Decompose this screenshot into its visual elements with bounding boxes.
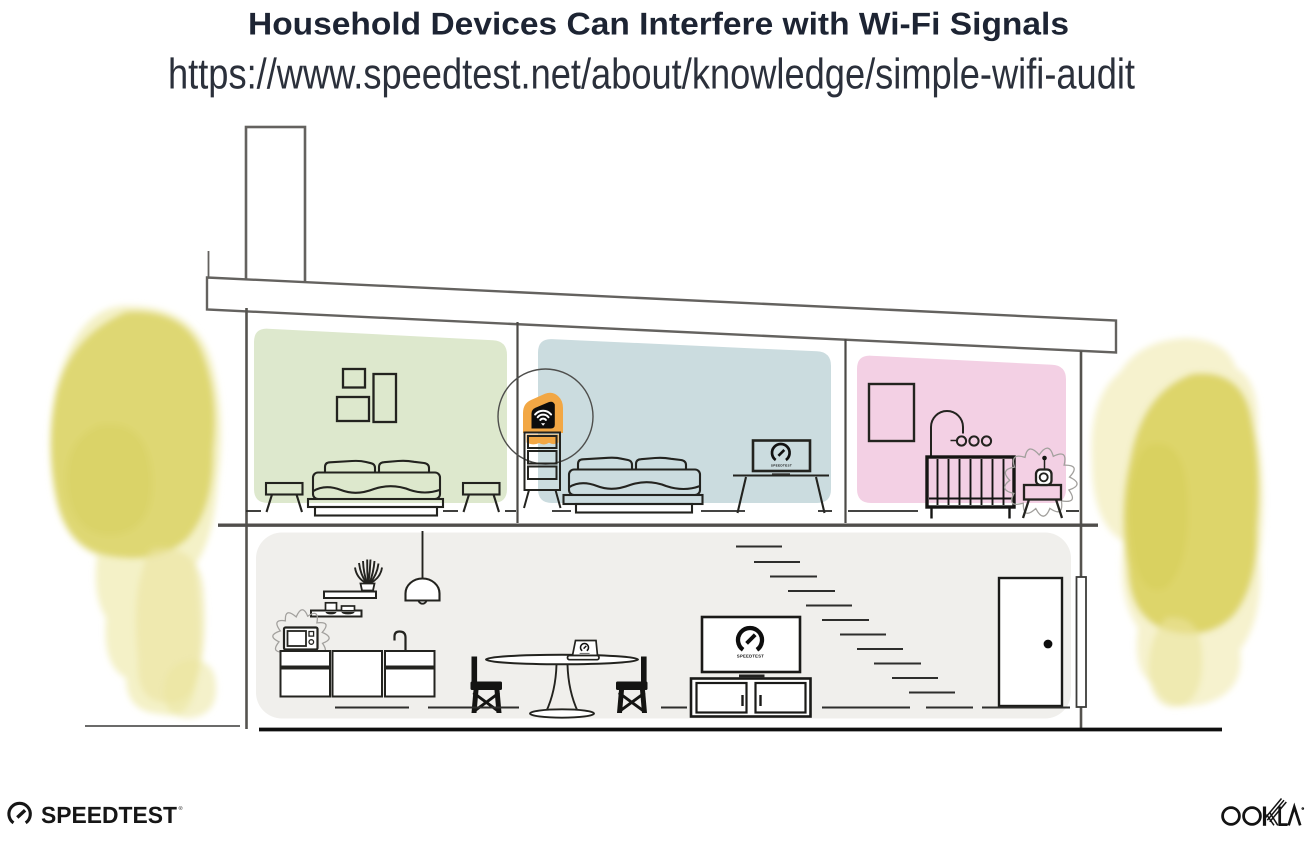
svg-text:SPEEDTEST: SPEEDTEST [771,463,792,467]
svg-text:https://www.speedtest.net/abou: https://www.speedtest.net/about/knowledg… [168,51,1135,99]
svg-text:SPEEDTEST: SPEEDTEST [737,653,764,658]
svg-text:SPEEDTEST: SPEEDTEST [41,802,178,828]
svg-text:Household Devices Can Interfer: Household Devices Can Interfere with Wi-… [248,6,1069,42]
svg-text:®: ® [179,806,183,812]
